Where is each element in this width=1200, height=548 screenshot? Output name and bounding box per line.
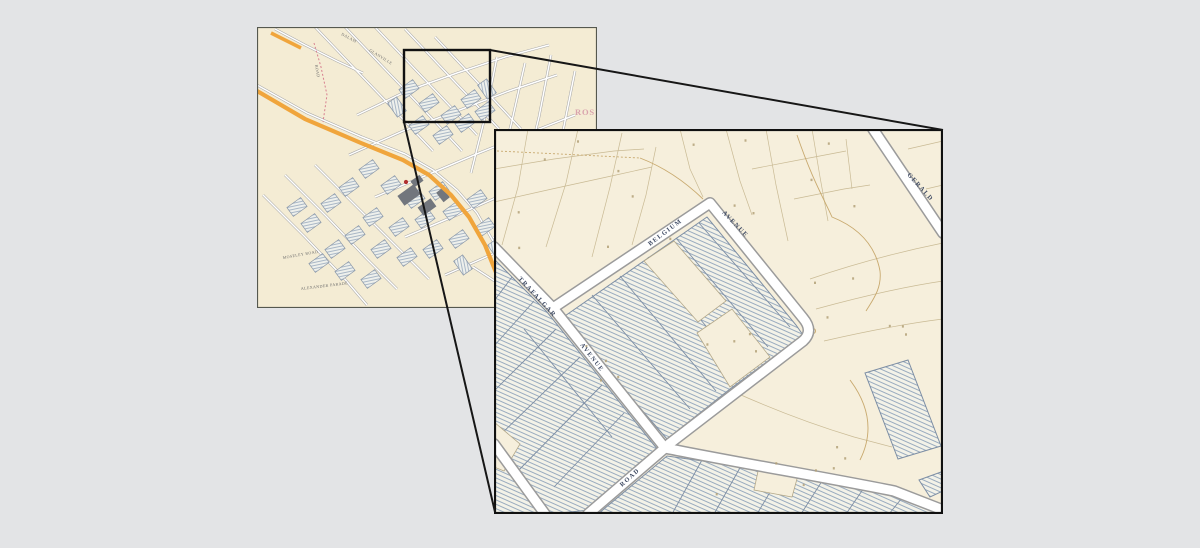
overview-landmark-dot (404, 180, 408, 184)
overview-region-label: ROS (575, 107, 595, 117)
page-background: MOSELEY ROAD ALEXANDER PARADE ROAD DALAM… (0, 0, 1200, 548)
detail-map[interactable]: TRAFALGAR AVENUE BELGIUM AVENUE GERALD R… (494, 129, 943, 514)
detail-map-canvas: TRAFALGAR AVENUE BELGIUM AVENUE GERALD R… (494, 129, 943, 514)
